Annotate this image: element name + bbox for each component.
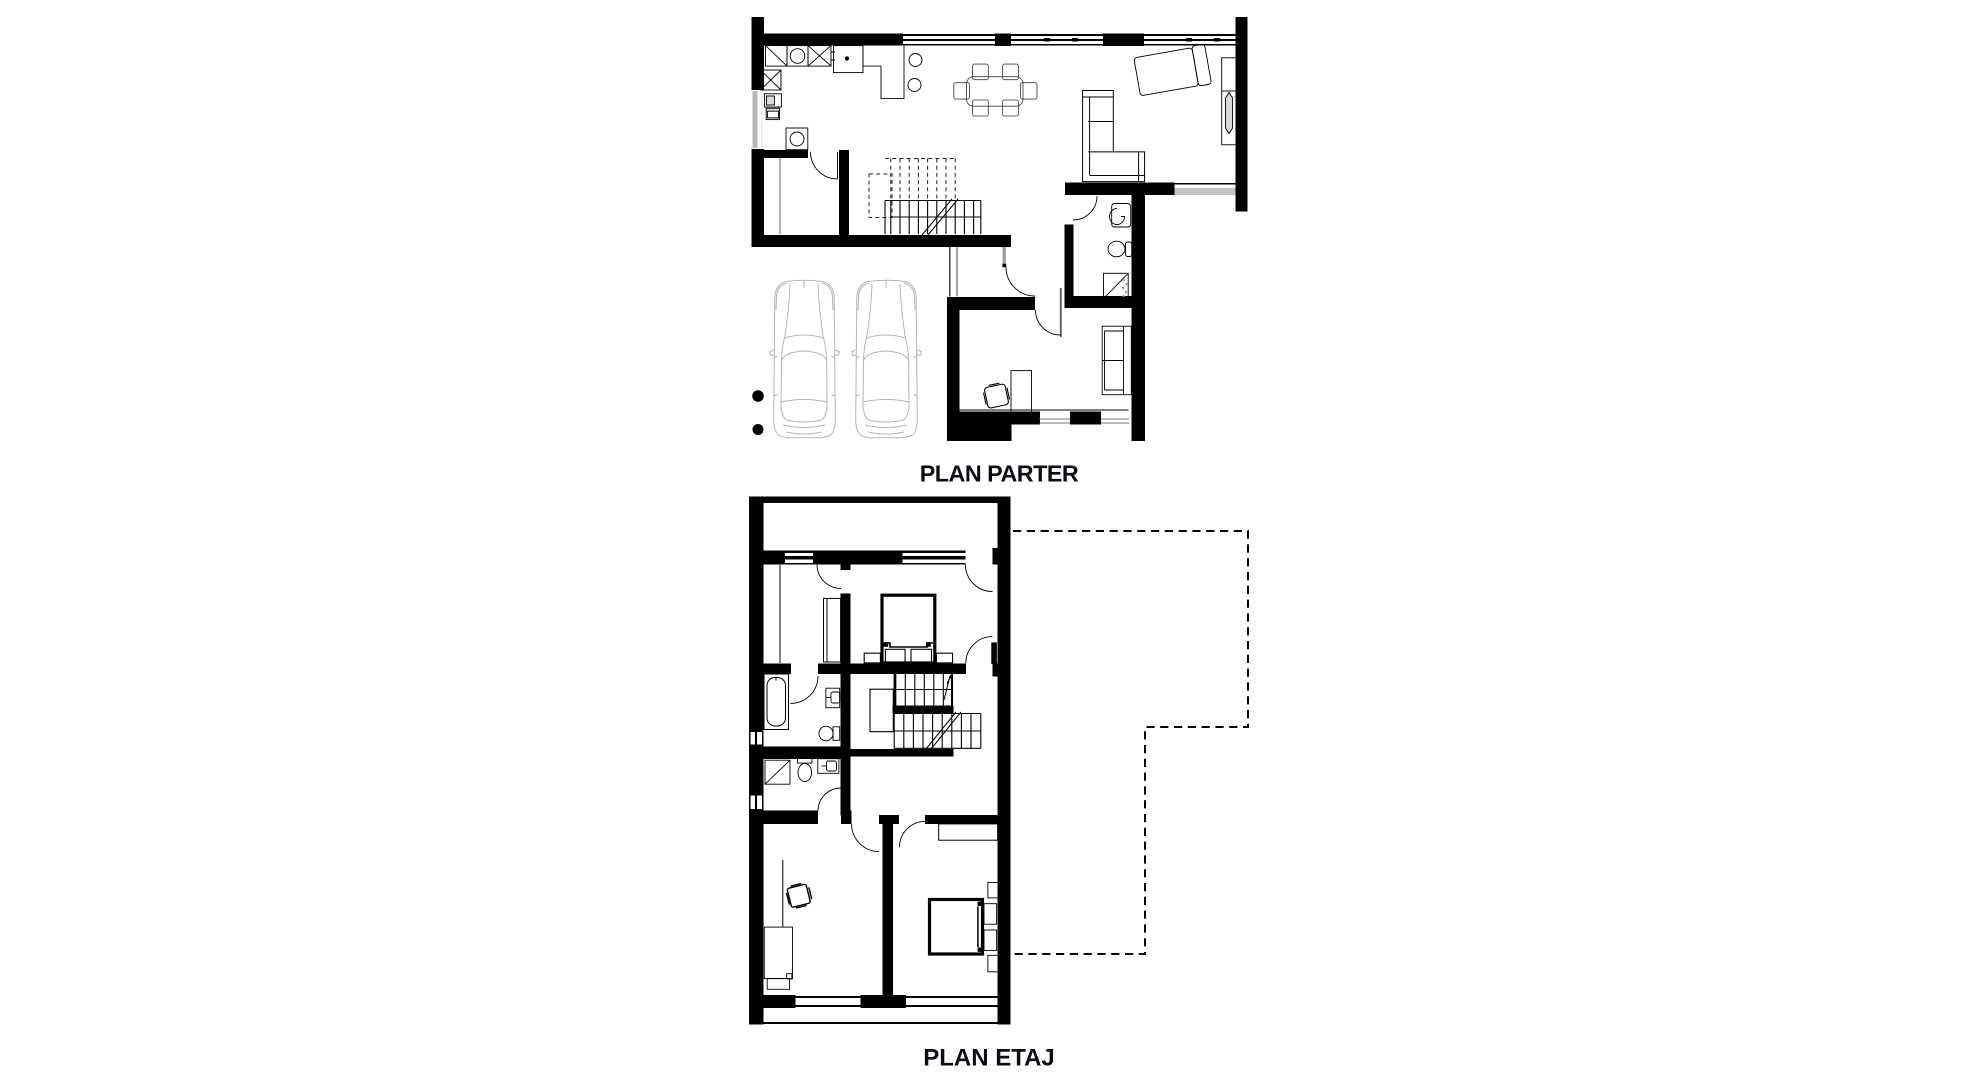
svg-text:PLAN ETAJ: PLAN ETAJ <box>923 1045 1055 1072</box>
svg-text:PLAN PARTER: PLAN PARTER <box>920 461 1079 487</box>
